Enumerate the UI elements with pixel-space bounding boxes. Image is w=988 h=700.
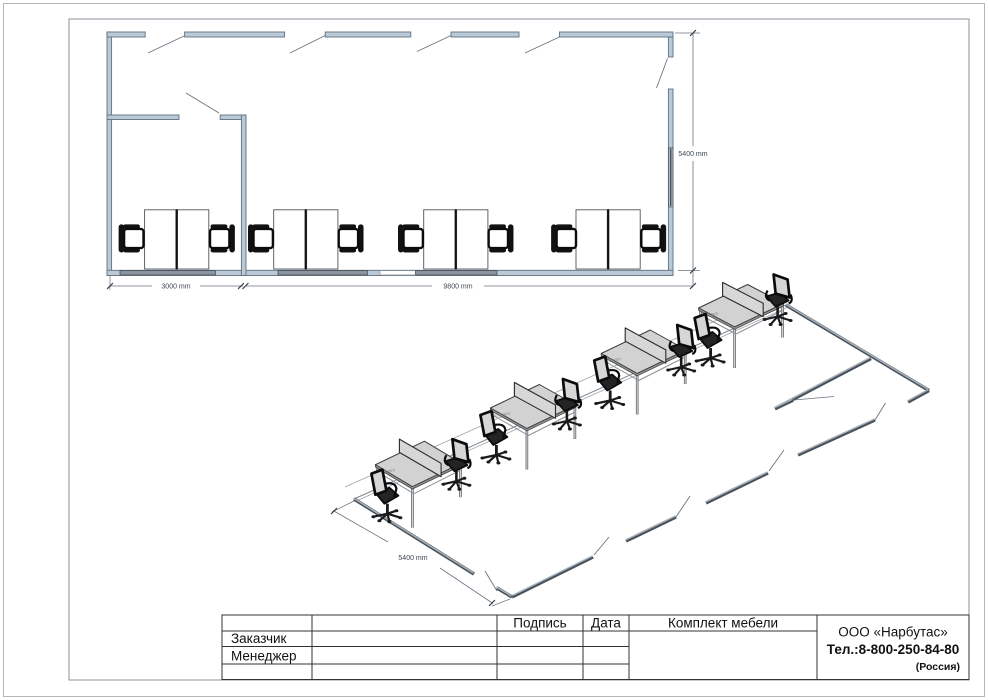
svg-text:9800 mm: 9800 mm: [443, 283, 472, 290]
svg-text:Менеджер: Менеджер: [231, 649, 297, 664]
svg-text:(Россия): (Россия): [916, 661, 960, 673]
svg-text:Подпись: Подпись: [513, 616, 566, 631]
svg-text:ООО «Нарбутас»: ООО «Нарбутас»: [838, 625, 948, 640]
svg-text:Заказчик: Заказчик: [231, 631, 287, 646]
svg-text:Тел.:8-800-250-84-80: Тел.:8-800-250-84-80: [827, 642, 959, 657]
svg-text:Комплект мебели: Комплект мебели: [668, 616, 778, 631]
svg-text:Дата: Дата: [591, 616, 621, 631]
svg-text:5400 mm: 5400 mm: [398, 555, 427, 562]
svg-text:5400 mm: 5400 mm: [678, 151, 707, 158]
svg-text:3000 mm: 3000 mm: [161, 283, 190, 290]
